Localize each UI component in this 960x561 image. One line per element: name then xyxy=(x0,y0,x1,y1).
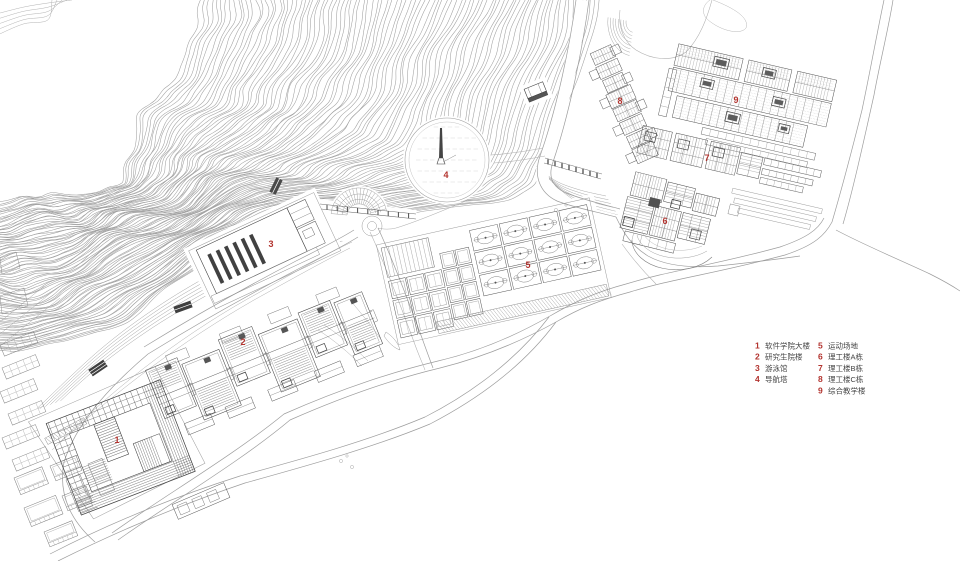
svg-text:6: 6 xyxy=(662,216,667,226)
svg-text:导航塔: 导航塔 xyxy=(765,374,788,384)
svg-text:9: 9 xyxy=(733,95,738,105)
svg-text:理工楼B栋: 理工楼B栋 xyxy=(828,363,864,373)
svg-text:4: 4 xyxy=(443,170,448,180)
svg-text:研究生院楼: 研究生院楼 xyxy=(765,352,803,362)
svg-text:运动场地: 运动场地 xyxy=(828,341,858,351)
svg-text:1: 1 xyxy=(755,341,760,351)
svg-text:3: 3 xyxy=(268,239,273,249)
svg-text:理工楼C栋: 理工楼C栋 xyxy=(828,374,864,384)
svg-text:7: 7 xyxy=(704,153,709,163)
svg-text:5: 5 xyxy=(525,260,530,270)
svg-text:7: 7 xyxy=(818,363,823,373)
svg-text:5: 5 xyxy=(818,341,823,351)
svg-text:6: 6 xyxy=(818,352,823,362)
svg-text:3: 3 xyxy=(755,363,760,373)
svg-text:游泳馆: 游泳馆 xyxy=(765,363,788,373)
svg-text:软件学院大楼: 软件学院大楼 xyxy=(765,341,810,351)
svg-text:9: 9 xyxy=(818,385,823,395)
svg-text:2: 2 xyxy=(755,352,760,362)
svg-text:1: 1 xyxy=(114,435,119,445)
svg-text:理工楼A栋: 理工楼A栋 xyxy=(828,352,864,362)
svg-text:4: 4 xyxy=(755,374,760,384)
svg-text:2: 2 xyxy=(240,337,245,347)
svg-text:8: 8 xyxy=(818,374,823,384)
svg-text:8: 8 xyxy=(617,96,622,106)
svg-text:综合教学楼: 综合教学楼 xyxy=(828,385,866,395)
